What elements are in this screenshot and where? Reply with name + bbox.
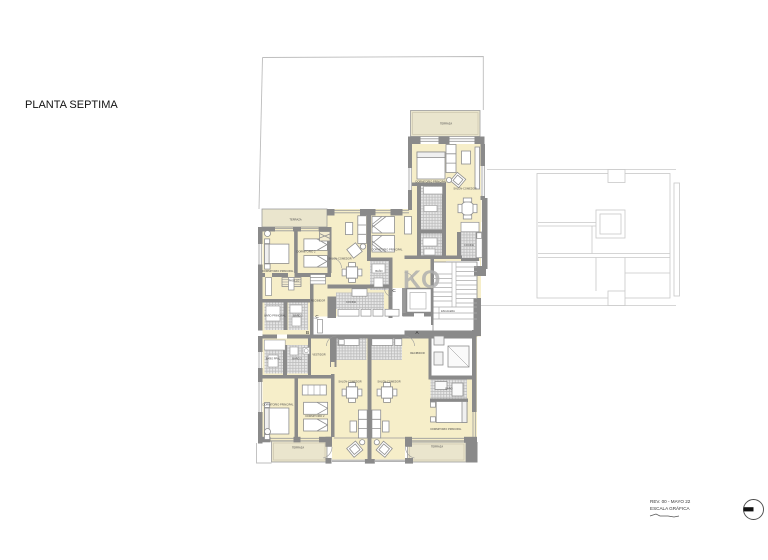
- svg-text:ESCALERA: ESCALERA: [441, 309, 455, 313]
- svg-text:DORMITORIO PRINCIPAL: DORMITORIO PRINCIPAL: [262, 269, 294, 273]
- svg-text:RECIBIDOR: RECIBIDOR: [311, 299, 326, 303]
- svg-text:ESCALA GRÁFICA: ESCALA GRÁFICA: [650, 505, 691, 511]
- svg-text:DORMITORIO PRINCIPAL: DORMITORIO PRINCIPAL: [262, 403, 294, 407]
- svg-text:SALON-COMEDOR: SALON-COMEDOR: [338, 380, 361, 384]
- svg-text:DORMITORIO 2: DORMITORIO 2: [306, 414, 326, 418]
- svg-text:TERRAZA: TERRAZA: [431, 445, 443, 449]
- svg-text:COCINA: COCINA: [346, 300, 356, 304]
- svg-text:TERRAZA: TERRAZA: [289, 218, 301, 222]
- svg-text:SALON-COMEDOR: SALON-COMEDOR: [377, 380, 400, 384]
- svg-text:KO: KO: [403, 266, 441, 294]
- svg-text:RECIBIDOR: RECIBIDOR: [410, 351, 425, 355]
- svg-text:DORMITORIO PRINCIPAL: DORMITORIO PRINCIPAL: [430, 427, 462, 431]
- svg-text:COCINA: COCINA: [464, 243, 474, 247]
- svg-text:DORMITORIO PRINCIPAL: DORMITORIO PRINCIPAL: [371, 248, 403, 252]
- svg-text:VESTIDOR: VESTIDOR: [312, 353, 325, 357]
- svg-text:DORMITORIO PRINCIPAL: DORMITORIO PRINCIPAL: [415, 180, 447, 184]
- svg-text:REV. 00 - MAYO 22: REV. 00 - MAYO 22: [650, 499, 691, 504]
- svg-text:TERRAZA: TERRAZA: [292, 446, 304, 450]
- svg-text:SALON-COMEDOR: SALON-COMEDOR: [328, 257, 351, 261]
- svg-text:SALON-COMEDOR: SALON-COMEDOR: [453, 187, 476, 191]
- svg-text:B: B: [306, 330, 309, 335]
- svg-text:PASILLO: PASILLO: [289, 279, 300, 283]
- svg-text:PLANTA SEPTIMA: PLANTA SEPTIMA: [25, 99, 118, 111]
- svg-text:DORMITORIO 2: DORMITORIO 2: [297, 250, 317, 254]
- svg-text:TERRAZA: TERRAZA: [440, 122, 452, 126]
